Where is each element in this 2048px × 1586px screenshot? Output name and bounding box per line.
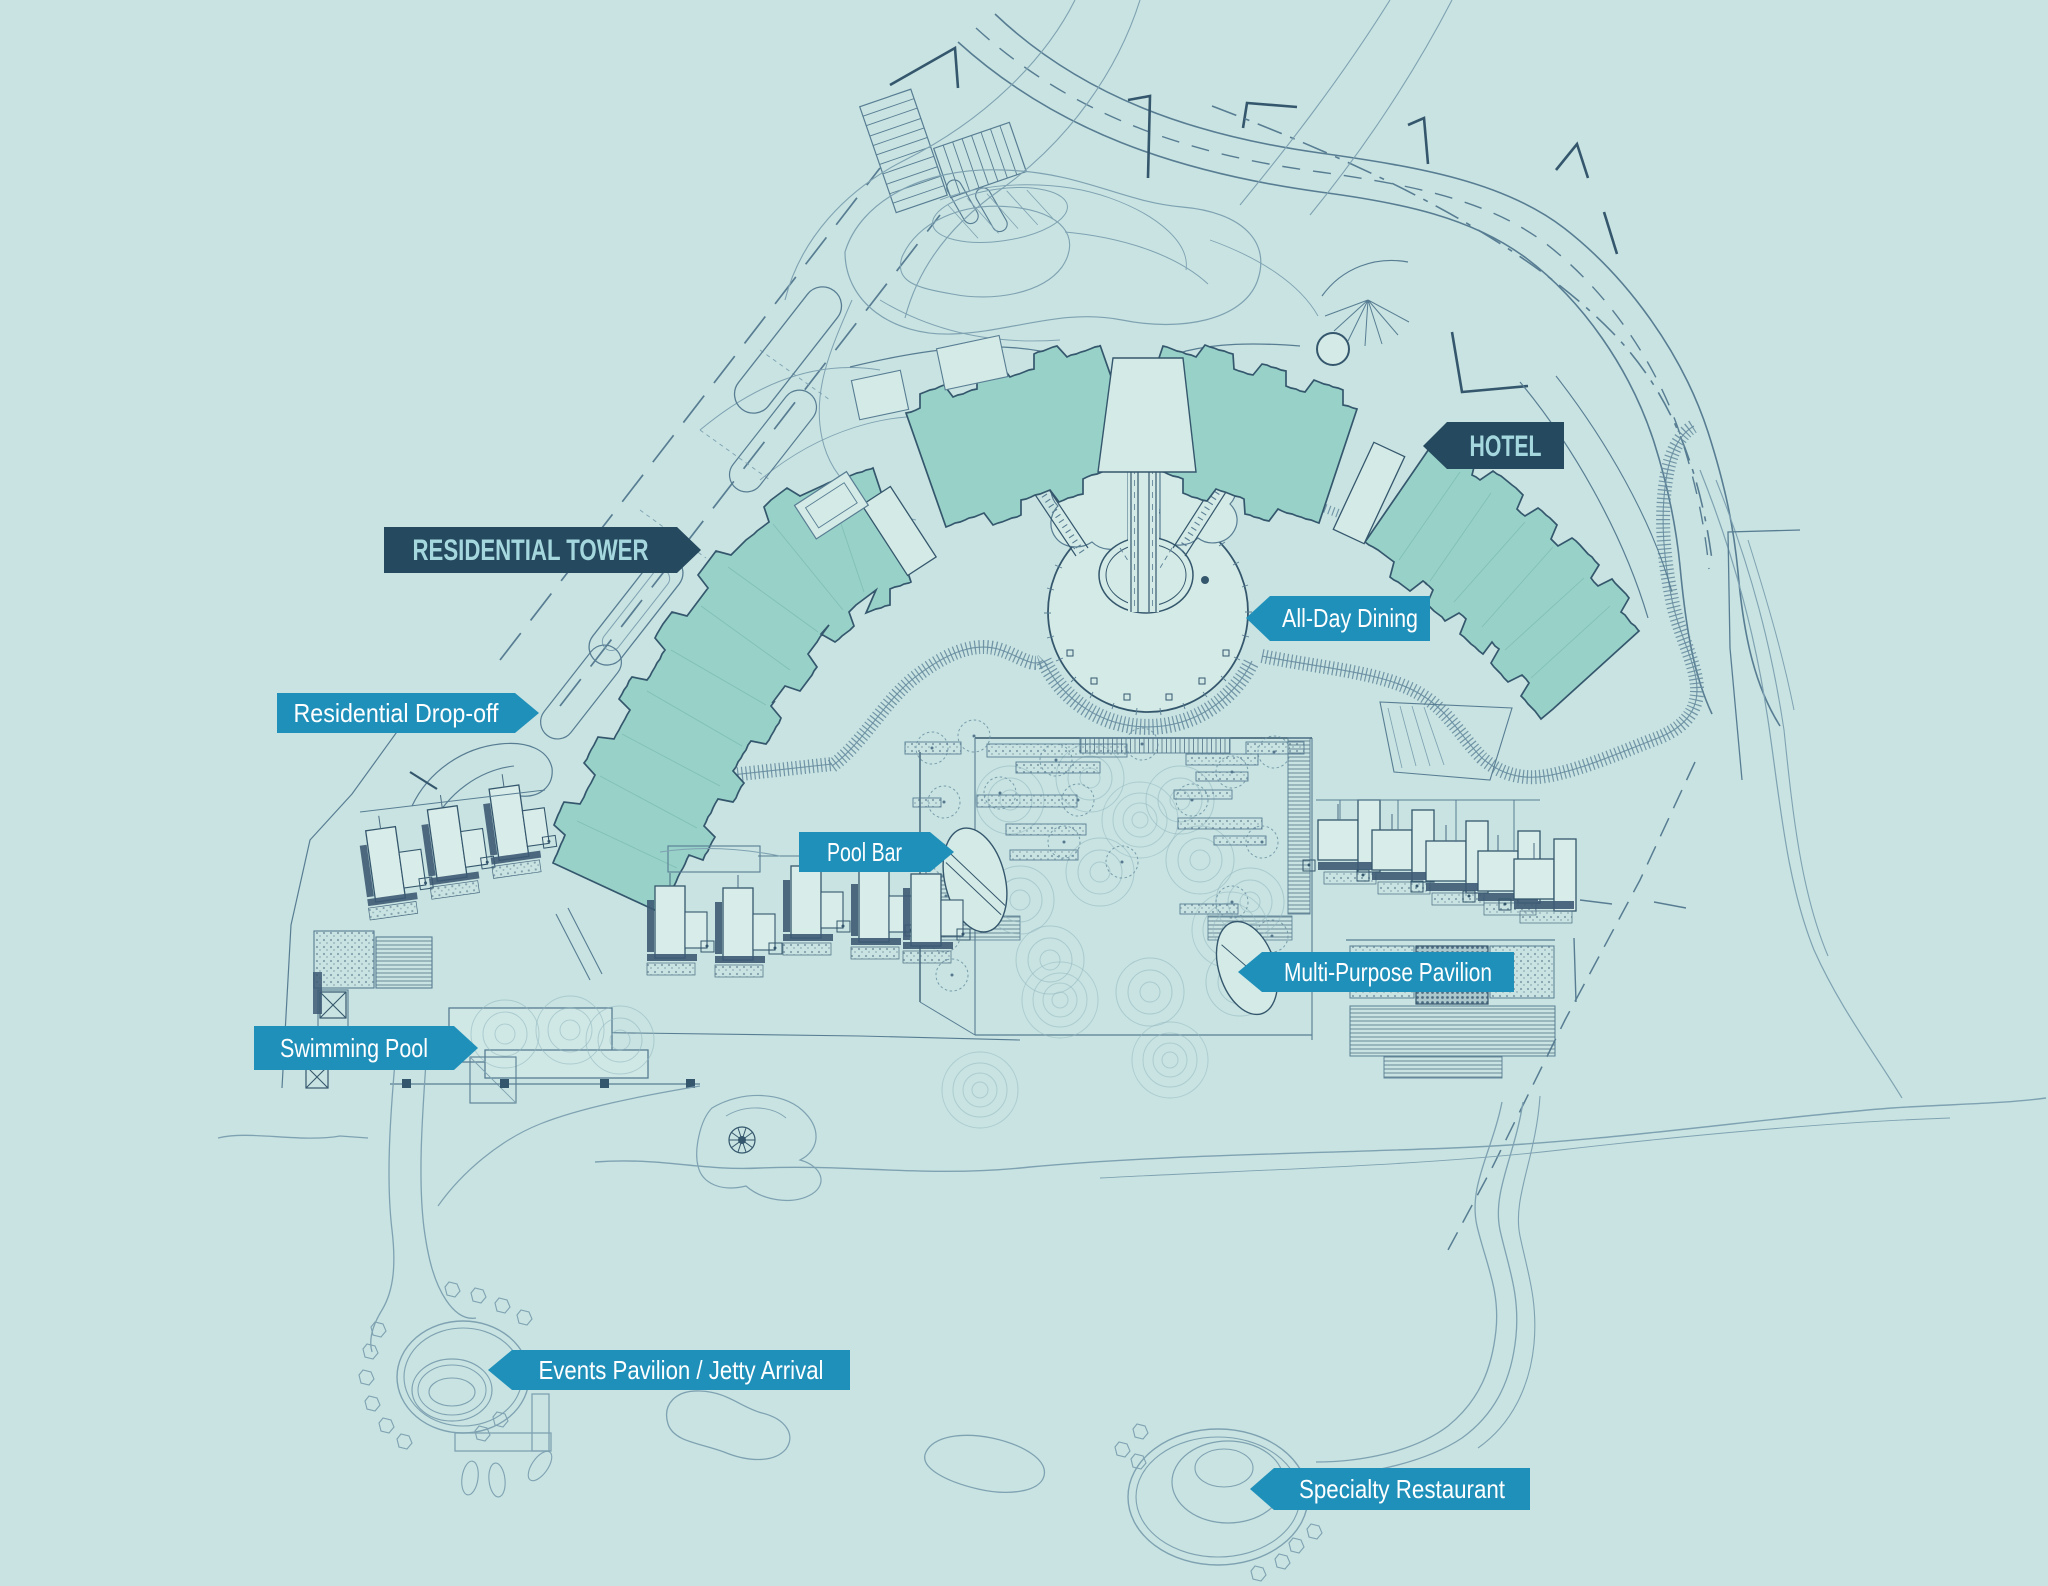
svg-text:Swimming Pool: Swimming Pool [280, 1033, 428, 1063]
svg-text:Events Pavilion / Jetty Arriva: Events Pavilion / Jetty Arrival [539, 1355, 824, 1385]
svg-text:HOTEL: HOTEL [1470, 430, 1542, 463]
svg-text:Specialty Restaurant: Specialty Restaurant [1299, 1474, 1506, 1504]
svg-text:Residential Drop-off: Residential Drop-off [294, 698, 500, 728]
svg-text:RESIDENTIAL TOWER: RESIDENTIAL TOWER [413, 534, 649, 567]
svg-text:All-Day Dining: All-Day Dining [1282, 603, 1418, 633]
svg-text:Multi-Purpose Pavilion: Multi-Purpose Pavilion [1284, 957, 1492, 987]
svg-text:Pool Bar: Pool Bar [827, 837, 902, 867]
